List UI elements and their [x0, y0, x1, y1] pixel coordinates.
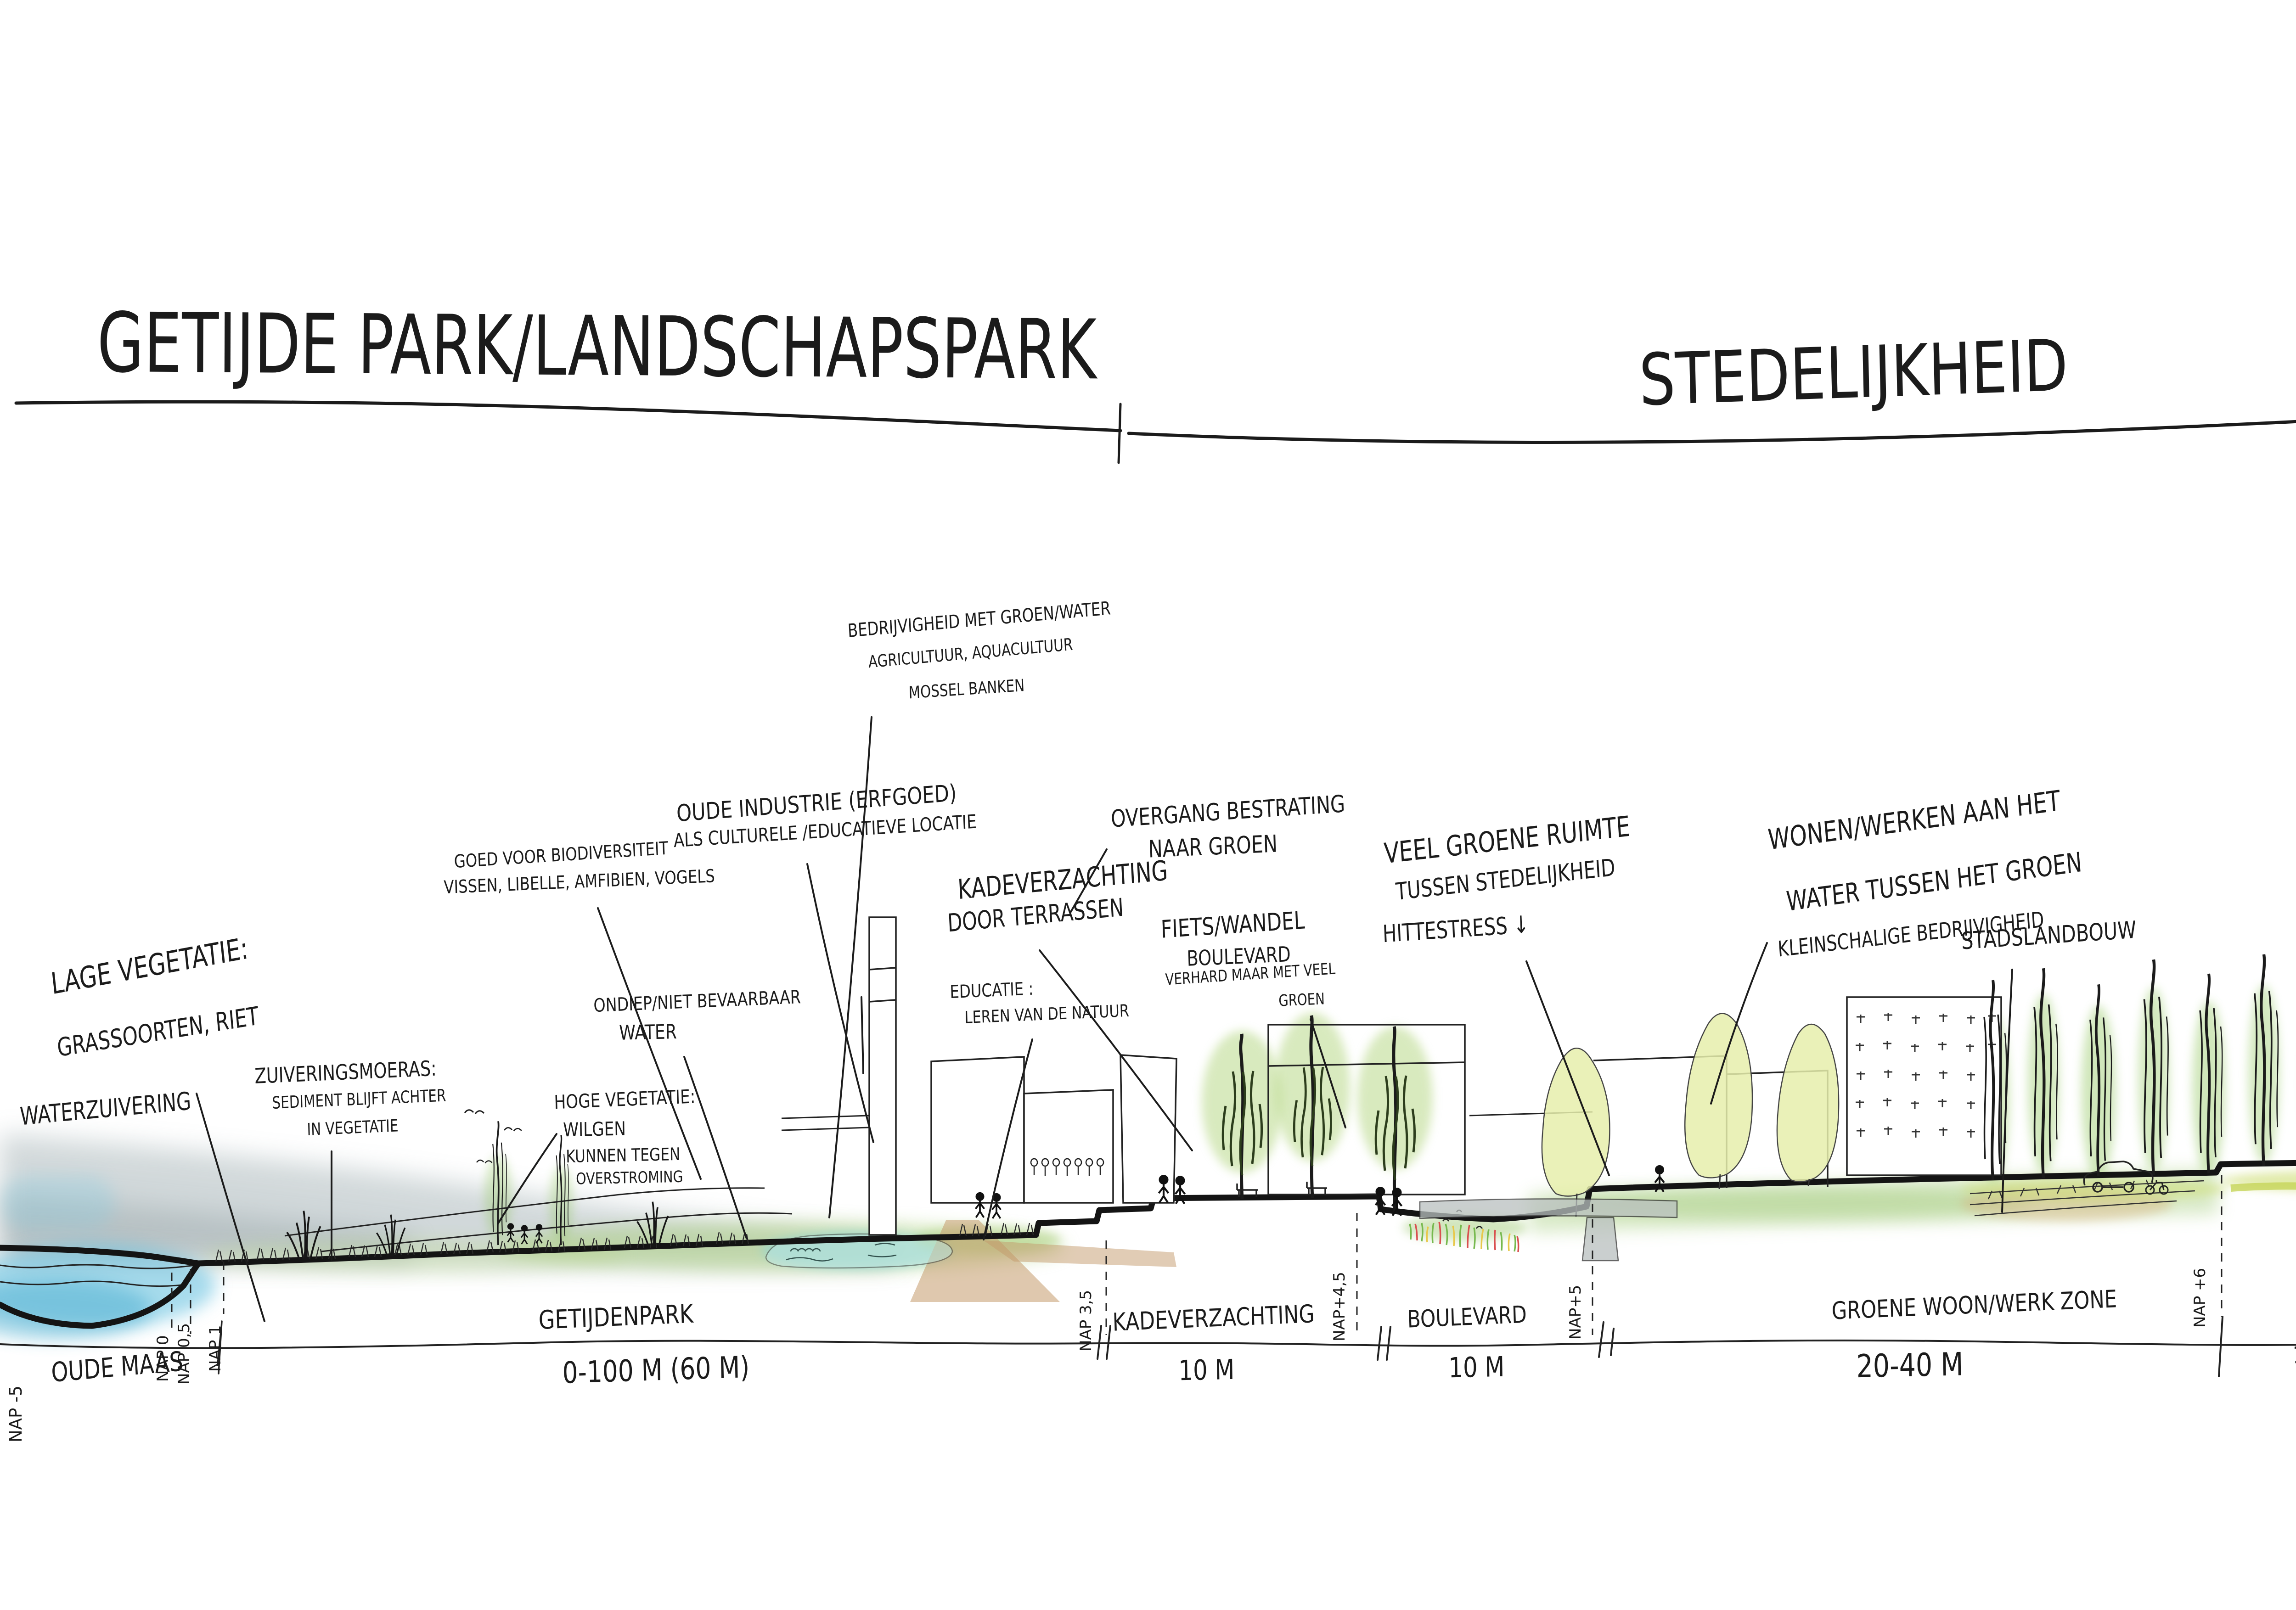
nap-label-5: NAP+5: [1568, 1285, 1583, 1340]
annotation-hoge-vegetatie-line2: WILGEN: [563, 1120, 626, 1140]
annotation-ondiep-line2: WATER: [619, 1021, 677, 1043]
annotation-overgang-line2: NAAR GROEN: [1148, 832, 1278, 861]
title-right: STEDELIJKHEID: [1638, 330, 2069, 416]
annotation-educatie-line1: EDUCATIE :: [950, 980, 1034, 1001]
scale-label-getijdenpark: GETIJDENPARK: [538, 1301, 694, 1333]
scale-size-getijdenpark: 0-100 M (60 M): [562, 1352, 750, 1388]
nap-label-35: NAP 3,5: [1078, 1290, 1094, 1352]
scale-size-dijk: 17,5 M: [2292, 1341, 2296, 1367]
industry-building: [931, 1057, 1024, 1203]
sketch-canvas: GETIJDE PARK/LANDSCHAPSPARK STEDELIJKHEI…: [0, 0, 2296, 1610]
annotation-hoge-vegetatie-line4: OVERSTROMING: [576, 1169, 683, 1187]
scale-size-woon-werk: 20-40 M: [1856, 1348, 1964, 1382]
apartment-facade: [1847, 997, 2001, 1175]
annotation-hoge-vegetatie-line3: KUNNEN TEGEN: [566, 1145, 681, 1165]
nap-label-45: NAP+4,5: [1332, 1272, 1347, 1341]
nap-label-0: NAP 0: [155, 1335, 171, 1382]
annotation-fiets-line4: GROEN: [1278, 992, 1325, 1010]
scale-size-kadeverzachting: 10 M: [1178, 1356, 1235, 1385]
nap-label-6: NAP +6: [2192, 1268, 2208, 1328]
scale-label-boulevard: BOULEVARD: [1407, 1302, 1527, 1331]
nap-label-1: NAP 1: [208, 1325, 223, 1372]
chimney: [869, 917, 896, 1235]
annotation-zuiveringsmoeras-line3: IN VEGETATIE: [307, 1117, 399, 1138]
title-left: GETIJDE PARK/LANDSCHAPSPARK: [97, 302, 1097, 392]
nap-label-05: NAP 0,5: [176, 1323, 192, 1385]
scale-size-boulevard: 10 M: [1448, 1353, 1505, 1382]
nap-label-minus5: NAP -5: [7, 1386, 24, 1442]
